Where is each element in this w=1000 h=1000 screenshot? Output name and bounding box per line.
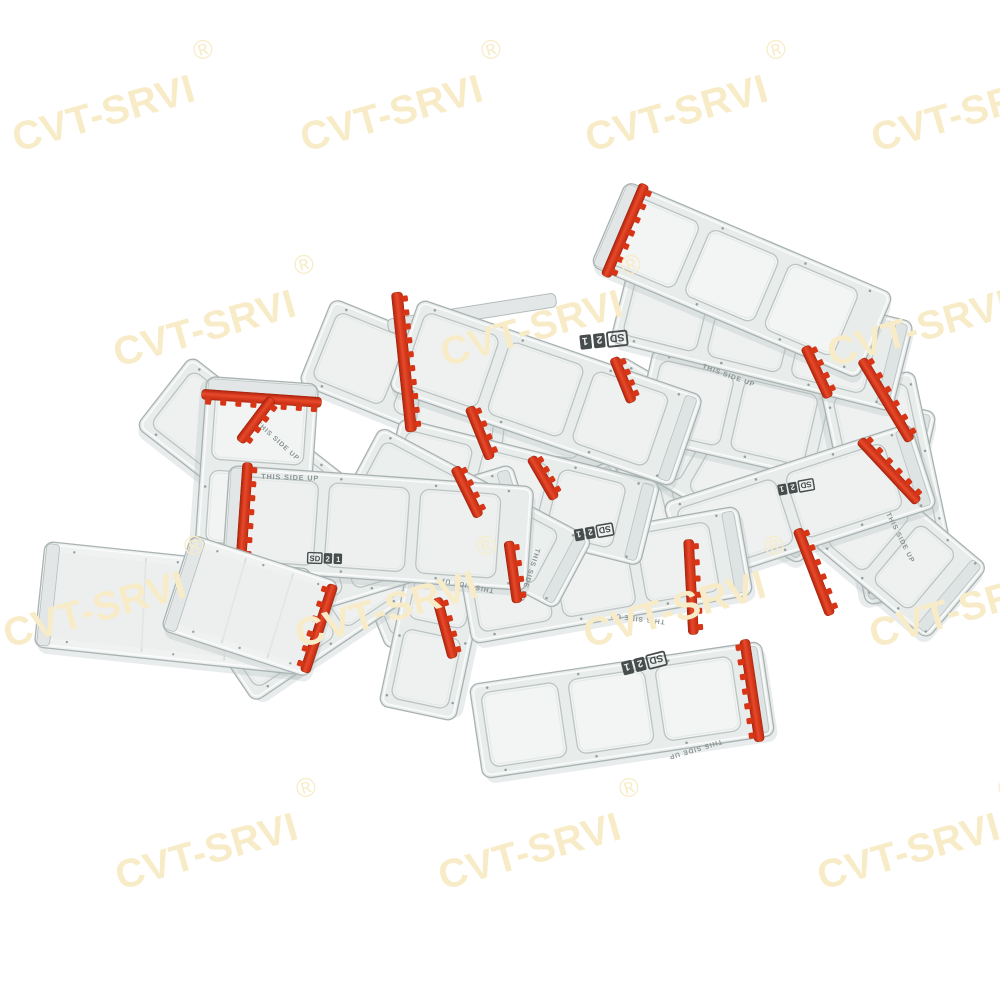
svg-text:SD: SD	[598, 524, 612, 536]
svg-text:SD: SD	[309, 554, 320, 563]
svg-text:2: 2	[325, 554, 330, 563]
svg-text:SD: SD	[609, 331, 625, 345]
